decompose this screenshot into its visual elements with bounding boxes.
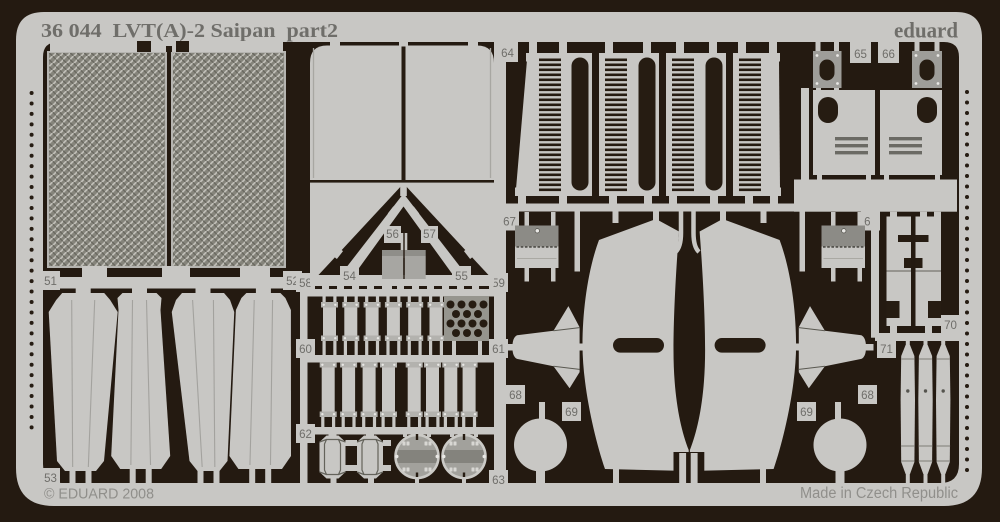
svg-text:68: 68 (861, 390, 874, 402)
svg-text:36 044 LVT(A)-2 Saipan part2: 36 044 LVT(A)-2 Saipan part2 (41, 21, 338, 42)
svg-text:62: 62 (299, 429, 312, 441)
svg-text:64: 64 (501, 48, 514, 60)
svg-text:68: 68 (509, 390, 522, 402)
svg-text:55: 55 (455, 271, 468, 283)
svg-text:65: 65 (854, 49, 867, 61)
svg-text:69: 69 (565, 407, 578, 419)
svg-text:56: 56 (386, 229, 399, 241)
svg-text:eduard: eduard (894, 18, 958, 43)
svg-text:69: 69 (800, 407, 813, 419)
svg-text:Made in Czech Republic: Made in Czech Republic (800, 485, 958, 502)
svg-text:67: 67 (503, 217, 516, 229)
svg-text:57: 57 (423, 229, 436, 241)
svg-text:71: 71 (880, 344, 893, 356)
svg-text:61: 61 (492, 344, 505, 356)
svg-text:70: 70 (944, 320, 957, 332)
svg-text:© EDUARD 2008: © EDUARD 2008 (44, 486, 154, 503)
svg-text:53: 53 (44, 473, 57, 485)
svg-text:60: 60 (299, 344, 312, 356)
svg-text:63: 63 (492, 475, 505, 487)
svg-text:59: 59 (492, 278, 505, 290)
svg-text:54: 54 (343, 271, 356, 283)
svg-text:58: 58 (299, 278, 312, 290)
svg-text:66: 66 (882, 49, 895, 61)
svg-text:51: 51 (44, 276, 57, 288)
